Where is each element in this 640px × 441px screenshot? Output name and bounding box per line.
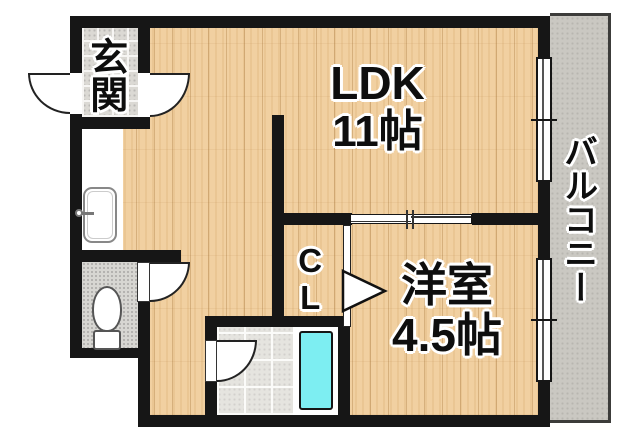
closet-label: CL: [293, 242, 327, 316]
ldk-sliding-window-icon: [536, 57, 552, 182]
wall-right-upper: [538, 16, 550, 57]
faucet-knob-icon: [75, 209, 83, 217]
bedroom-sliding-window-icon: [536, 258, 552, 382]
western-room-size: 4.5帖: [357, 312, 537, 359]
toilet-tank-icon: [93, 330, 121, 350]
western-room-label: 洋室 4.5帖: [357, 262, 537, 359]
bath-door-leaf: [205, 340, 217, 382]
wall-toilet-right: [138, 300, 150, 427]
sliding-door-lower-rail: [351, 221, 411, 223]
ldk-name: LDK: [295, 60, 460, 107]
entrance-label: 玄関: [85, 37, 124, 113]
wall-entrance-bottom: [70, 117, 150, 129]
wall-left-lower: [70, 114, 82, 358]
exterior-notch: [0, 358, 138, 441]
wall-entrance-right: [138, 16, 150, 73]
window-center-tick: [531, 119, 557, 121]
wall-bath-left-lower: [205, 382, 217, 427]
western-room-name: 洋室: [357, 262, 537, 309]
ldk-label: LDK 11帖: [295, 60, 460, 155]
sliding-door-tick: [406, 210, 408, 229]
wall-bath-right: [338, 316, 350, 427]
wall-right-middle: [538, 182, 550, 258]
wall-bath-top: [205, 316, 350, 327]
entrance-door-swing-icon: [28, 73, 70, 114]
wall-toilet-top: [70, 250, 181, 262]
sliding-door-upper-rail: [411, 216, 471, 218]
entrance-inner-doorway: [138, 73, 150, 117]
wall-bath-left-upper: [205, 316, 217, 340]
wall-ldk-divider-left: [272, 213, 352, 225]
bathtub-icon: [299, 331, 333, 410]
balcony-label: バルコニー: [560, 134, 595, 304]
toilet-icon: [92, 286, 122, 332]
sliding-door-tick: [412, 210, 414, 229]
wall-left-upper: [70, 16, 82, 73]
ldk-size: 11帖: [295, 110, 460, 155]
sink-icon: [83, 187, 117, 243]
sliding-door-icon: [350, 214, 472, 224]
toilet-door-leaf: [137, 262, 150, 302]
floor-plan: 玄関 LDK 11帖 洋室 4.5帖 CL バルコニー: [0, 0, 640, 441]
